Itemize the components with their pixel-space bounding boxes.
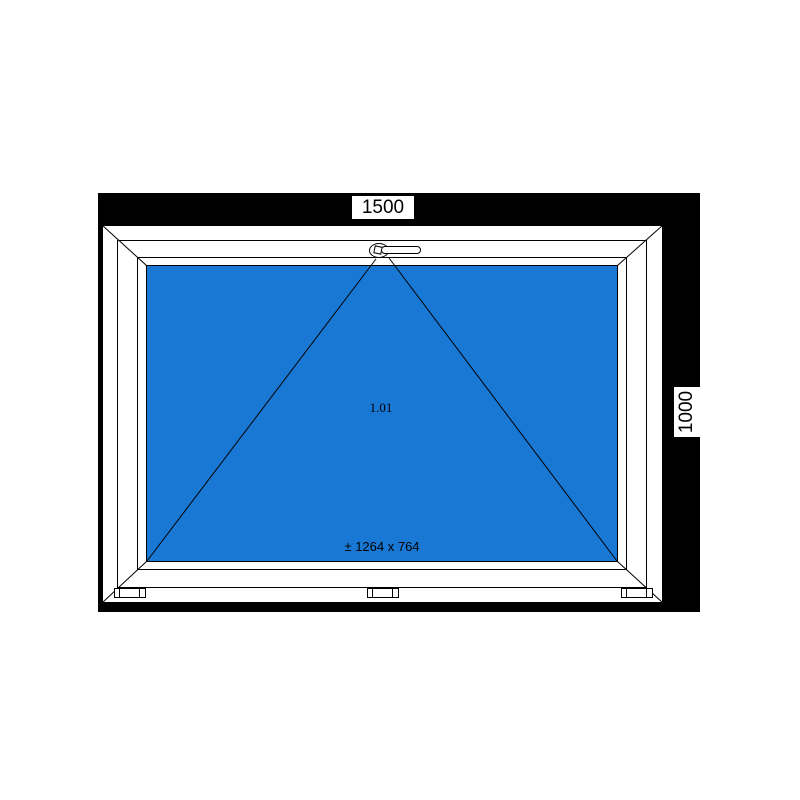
cap-divider	[372, 589, 373, 597]
handle-rosette-icon	[373, 245, 382, 254]
drainage-cap-center	[367, 588, 399, 598]
height-dimension-label: 1000	[674, 387, 700, 437]
drainage-cap-left	[114, 588, 146, 598]
window-technical-drawing: 1500 1000 1.01 ± 1264 x 764	[0, 0, 800, 800]
width-dimension-label: 1500	[352, 196, 414, 219]
cap-divider	[646, 589, 647, 597]
handle-lever-icon	[381, 246, 421, 254]
cap-divider	[119, 589, 120, 597]
cap-divider	[139, 589, 140, 597]
height-dimension-text: 1000	[676, 391, 698, 433]
position-number: 1.01	[370, 400, 393, 416]
cap-divider	[392, 589, 393, 597]
sash-dimensions-text: ± 1264 x 764	[344, 539, 419, 554]
cap-divider	[626, 589, 627, 597]
drainage-cap-right	[621, 588, 653, 598]
